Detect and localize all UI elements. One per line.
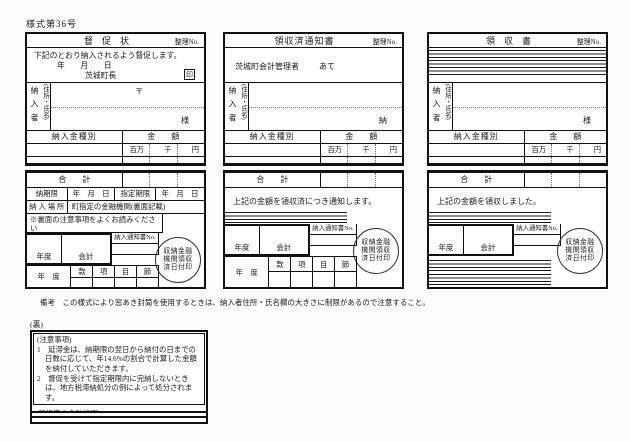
receipt-header: 領 収 書 整理No. (429, 34, 606, 48)
place-label: 納 入 場 所 (27, 201, 68, 213)
budget-col: 目 (114, 266, 136, 278)
ref-no-label: 整理No. (373, 37, 397, 47)
amount-cell (149, 173, 176, 187)
demand-upper-box: 督 促 状 整理No. 下記のとおり納入されるよう督促します。 年 月 日 茨城… (25, 32, 206, 166)
caution-item-1: 1 延滞金は、納期限の翌日から納付の日までの日数に応じて、年14.6%の割合で計… (37, 345, 201, 374)
panel-demand-notice: 督 促 状 整理No. 下記のとおり納入されるよう督促します。 年 月 日 茨城… (25, 32, 206, 289)
amount-cell (551, 157, 578, 163)
panel-receipt-notification: 領収済通知書 整理No. 茨城町会計管理者 あて 納入者 (住所・氏名) 納 納… (223, 32, 404, 289)
hatched-void-strip (429, 260, 551, 271)
stamp-line: 済日付印 (163, 264, 192, 272)
due-date: 年 月 日 (68, 188, 116, 200)
designated-label: 指定期限 (115, 188, 156, 200)
kind-cell (225, 157, 321, 163)
receipt-stamp-circle: 収納金融 機関領収 済日付印 (155, 237, 201, 283)
amount-cell (321, 157, 347, 163)
payer-row: 納入者 (住所・氏名) 様 (429, 83, 606, 131)
amount-cell (347, 173, 374, 187)
total-row: 合 計 (27, 173, 204, 188)
stamp-line: 機関領収 (361, 247, 390, 255)
payer-entry-area: 様 (453, 83, 606, 130)
account-section: 年度 会計 納入通知書No. 収納金融 機関領収 済日付印 年 度 款 (27, 233, 204, 287)
back-side-label: (裏) (30, 319, 43, 330)
form-page: 様式第36号 督 促 状 整理No. 下記のとおり納入されるよう督促します。 年… (0, 0, 630, 441)
caution-item-2: 2 督促を受けて指定期限内に完納しないときは、地方税滞納処分の例によって処分され… (37, 374, 201, 403)
address-name-divider (51, 107, 204, 108)
receipt-stamp-circle: 収納金融 機関領収 済日付印 (353, 228, 399, 274)
total-label: 合 計 (429, 173, 525, 187)
notification-lower-box: 合 計 上記の金額を領収済につき通知します。 年度 会計 納入通知書No. (223, 170, 404, 289)
account-cell: 会計 (260, 226, 308, 254)
notice-no-label: 納入通知書No. (112, 233, 158, 244)
year-account-box: 年度 会計 (429, 224, 514, 256)
budget-cell (136, 278, 158, 287)
year-label: 年度 (429, 242, 463, 253)
panel-title: 領 収 書 (486, 34, 549, 47)
kind-cell (429, 144, 525, 156)
year-label: 年度 (27, 251, 61, 262)
stamp-line: 収納金融 (361, 239, 390, 247)
stamp-line: 済日付印 (565, 255, 594, 263)
year-cell: 年度 (429, 226, 464, 254)
payer-label: 納入者 (225, 83, 238, 130)
total-cells (123, 173, 204, 187)
amount-cell (177, 173, 204, 187)
notice-no-label: 納入通知書No. (514, 224, 560, 235)
fiscal-year-label: 年 度 (225, 257, 269, 287)
budget-col: 目 (312, 257, 334, 272)
amount-units: 百万 千 円 (525, 144, 606, 156)
year-cell: 年度 (27, 235, 62, 263)
panel-title: 領収済通知書 (274, 34, 352, 47)
amount-header: 金 額 (525, 131, 606, 143)
receipt-message: 上記の金額を領収しました。 (429, 188, 606, 212)
honorific: 様 (181, 115, 189, 126)
total-row: 合 計 (225, 173, 402, 188)
amount-cell (375, 157, 402, 163)
amount-cell (525, 157, 551, 163)
amount-cell (551, 173, 578, 187)
kind-header: 納入金種別 (429, 131, 525, 143)
notice-no-column: 納入通知書No. (310, 224, 357, 246)
total-row: 合 計 (429, 173, 606, 188)
year-account-box: 年度 会計 (27, 233, 112, 265)
receipt-lower-box: 合 計 上記の金額を領収しました。 年度 会計 納入通知書No. (427, 170, 608, 289)
budget-header-row: 款 項 目 節 (71, 266, 157, 278)
notice-no-cell (112, 244, 158, 255)
budget-col: 節 (334, 257, 356, 272)
budget-table: 年 度 款 項 目 節 (225, 256, 357, 287)
money-header-row: 納入金種別 金 額 (429, 131, 606, 144)
addressee-suffix: あて (319, 62, 335, 71)
year-label: 年度 (225, 242, 259, 253)
hatched-void-strip (429, 274, 551, 285)
account-cell: 会計 (62, 235, 110, 263)
back-note-text: ※裏面の注意事項をよくお読みください (27, 214, 163, 233)
budget-col: 項 (92, 266, 114, 278)
thousand-label: 千 (149, 144, 176, 156)
amount-cells (123, 157, 204, 163)
amount-cell (579, 173, 606, 187)
kind-cell (27, 144, 123, 156)
addressee-line: 茨城町会計管理者 あて (235, 61, 335, 72)
budget-col: 款 (71, 266, 92, 278)
kind-cell (27, 157, 123, 163)
million-label: 百万 (123, 144, 149, 156)
total-cells (321, 173, 402, 187)
budget-cell (114, 278, 136, 287)
money-unit-row: 百万 千 円 (429, 144, 606, 157)
amount-cell (347, 157, 374, 163)
receipt-stamp-circle: 収納金融 機関領収 済日付印 (557, 228, 603, 274)
amount-cell (123, 173, 149, 187)
postal-mark: 〒 (135, 86, 143, 97)
account-label: 会計 (260, 242, 308, 253)
thousand-label: 千 (551, 144, 578, 156)
account-label: 会計 (464, 242, 512, 253)
notice-no-cell (514, 235, 560, 246)
budget-cell (269, 272, 290, 287)
address-name-divider (453, 107, 606, 108)
hatched-void-strip (225, 212, 347, 224)
money-unit-row: 百万 千 円 (225, 144, 402, 157)
budget-col: 項 (290, 257, 312, 272)
notice-no-column: 納入通知書No. (112, 233, 159, 255)
addressee-name: 茨城町会計管理者 (235, 62, 299, 71)
budget-cell (92, 278, 114, 287)
payer-sub-label: (住所・氏名) (238, 83, 249, 130)
cautions-title: (注意事項) (37, 335, 201, 345)
payer-entry-area: 納 (249, 83, 402, 130)
budget-header-row: 款 項 目 節 (269, 257, 355, 272)
issuer-name: 茨城町長 (85, 70, 116, 81)
notification-message: 上記の金額を領収済につき通知します。 (225, 188, 402, 212)
budget-cell (290, 272, 312, 287)
budget-col: 節 (136, 266, 158, 278)
budget-table: 年 度 款 項 目 節 (27, 265, 159, 287)
notification-header: 領収済通知書 整理No. (225, 34, 402, 48)
million-label: 百万 (525, 144, 551, 156)
million-label: 百万 (321, 144, 347, 156)
amount-cell (579, 157, 606, 163)
kind-cell (225, 144, 321, 156)
kind-header: 納入金種別 (27, 131, 123, 143)
place-value: 町指定の金融機関(裏面記載) (68, 201, 204, 213)
seal-mark: 印 (184, 69, 195, 80)
amount-cells (525, 157, 606, 163)
money-unit-row: 百万 千 円 (27, 144, 204, 157)
receipt-upper-box: 領 収 書 整理No. 納入者 (住所・氏名) 様 納入金種別 金 額 (427, 32, 608, 166)
year-cell: 年度 (225, 226, 260, 254)
amount-units: 百万 千 円 (123, 144, 204, 156)
yen-label: 円 (375, 144, 402, 156)
money-blank-row (225, 157, 402, 163)
hatched-void-strip (429, 212, 551, 224)
honorific: 様 (583, 115, 591, 126)
amount-cells (321, 157, 402, 163)
notification-upper-box: 領収済通知書 整理No. 茨城町会計管理者 あて 納入者 (住所・氏名) 納 納… (223, 32, 404, 166)
payer-row: 納入者 (住所・氏名) 納 (225, 83, 402, 131)
total-cells (525, 173, 606, 187)
budget-columns: 款 項 目 節 (269, 257, 355, 287)
budget-cell (312, 272, 334, 287)
payer-label: 納入者 (429, 83, 442, 130)
amount-header: 金 額 (123, 131, 204, 143)
account-section: 年度 会計 納入通知書No. 収納金融 機関領収 済日付印 (429, 224, 606, 287)
payer-sub-label: (住所・氏名) (442, 83, 453, 130)
budget-empty-row (269, 272, 355, 287)
amount-cell (149, 157, 176, 163)
amount-cell (321, 173, 347, 187)
panel-title: 督 促 状 (84, 34, 147, 47)
kind-header: 納入金種別 (225, 131, 321, 143)
payment-place-row: 納 入 場 所 町指定の金融機関(裏面記載) (27, 201, 204, 214)
payer-label: 納入者 (27, 83, 40, 130)
account-cell: 会計 (464, 226, 512, 254)
notice-no-column: 納入通知書No. (514, 224, 561, 246)
amount-cell (123, 157, 149, 163)
panel-receipt: 領 収 書 整理No. 納入者 (住所・氏名) 様 納入金種別 金 額 (427, 32, 608, 289)
total-label: 合 計 (225, 173, 321, 187)
honorific: 納 (379, 115, 387, 126)
designated-date: 年 月 日 (156, 188, 204, 200)
year-account-box: 年度 会計 (225, 224, 310, 256)
budget-cell (334, 272, 356, 287)
remarks-line: 備考 この様式により窓あき封筒を使用するときは、納入者住所・氏名欄の大きさに制限… (40, 297, 430, 308)
budget-columns: 款 項 目 節 (71, 266, 157, 287)
payer-row: 納入者 (住所・氏名) 〒 様 (27, 83, 204, 131)
budget-empty-row (71, 278, 157, 287)
stamp-line: 機関領収 (163, 256, 192, 264)
hatched-addressee-area (429, 48, 606, 83)
amount-header: 金 額 (321, 131, 402, 143)
demand-lower-box: 合 計 納期限 年 月 日 指定期限 年 月 日 納 入 場 所 町指定の金融機… (25, 170, 206, 289)
payer-sub-label: (住所・氏名) (40, 83, 51, 130)
amount-cell (375, 173, 402, 187)
demand-header: 督 促 状 整理No. (27, 34, 204, 48)
budget-col: 款 (269, 257, 290, 272)
stamp-line: 収納金融 (163, 248, 192, 256)
yen-label: 円 (177, 144, 204, 156)
fiscal-year-label: 年 度 (27, 266, 71, 287)
ref-no-label: 整理No. (175, 37, 199, 47)
demand-issuer-area: 下記のとおり納入されるよう督促します。 年 月 日 茨城町長 印 (27, 48, 204, 83)
form-number: 様式第36号 (26, 17, 77, 30)
cautions-box: (注意事項) 1 延滞金は、納期限の翌日から納付の日までの日数に応じて、年14.… (33, 333, 205, 405)
payer-entry-area: 〒 様 (51, 83, 204, 130)
stamp-line: 機関領収 (565, 247, 594, 255)
money-blank-row (429, 157, 606, 163)
yen-label: 円 (579, 144, 606, 156)
ref-no-label: 整理No. (577, 37, 601, 47)
back-note-row: ※裏面の注意事項をよくお読みください (27, 214, 204, 233)
money-header-row: 納入金種別 金 額 (27, 131, 204, 144)
deadline-row: 納期限 年 月 日 指定期限 年 月 日 (27, 188, 204, 201)
total-label: 合 計 (27, 173, 123, 187)
stamp-line: 済日付印 (361, 255, 390, 263)
amount-cell (525, 173, 551, 187)
kind-cell (429, 157, 525, 163)
account-label: 会計 (62, 251, 110, 262)
notice-no-label: 納入通知書No. (310, 224, 356, 235)
budget-cell (71, 278, 92, 287)
addressee-area: 茨城町会計管理者 あて (225, 48, 402, 83)
money-header-row: 納入金種別 金 額 (225, 131, 402, 144)
notice-no-cell (310, 235, 356, 246)
thousand-label: 千 (347, 144, 374, 156)
money-blank-row (27, 157, 204, 163)
due-label: 納期限 (27, 188, 68, 200)
address-name-divider (249, 107, 402, 108)
stamp-line: 収納金融 (565, 239, 594, 247)
hatched-void-band (429, 50, 606, 77)
account-section: 年度 会計 納入通知書No. 収納金融 機関領収 済日付印 年 度 款 (225, 224, 402, 287)
amount-cell (177, 157, 204, 163)
empty-back-bar (30, 411, 208, 418)
amount-units: 百万 千 円 (321, 144, 402, 156)
